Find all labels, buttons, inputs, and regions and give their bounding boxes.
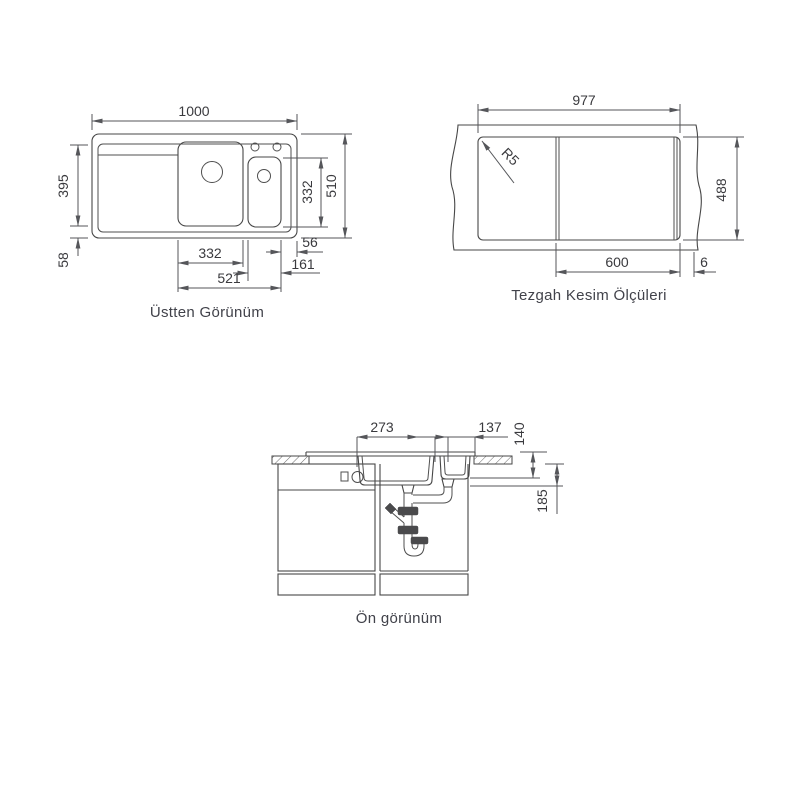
- cutout-divider-right: [674, 137, 677, 240]
- dim-overall-depth: 510: [323, 174, 339, 198]
- main-bowl: [178, 142, 243, 226]
- countertop-section-left: [272, 456, 309, 464]
- main-drain-hole: [202, 162, 223, 183]
- cutout-view: R5 977 488 600 6 Tezgah Kesim Ölçüleri: [451, 92, 744, 304]
- dim-edge-offset: 6: [700, 254, 708, 270]
- trap-nut-outlet: [411, 537, 428, 544]
- front-view-dimensions: 273 137 140 185: [357, 419, 564, 514]
- dim-small-drain-offset: 137: [478, 419, 502, 435]
- trap-nut-mid: [398, 526, 418, 534]
- small-bowl: [248, 157, 281, 227]
- siphon-assembly: [385, 479, 454, 556]
- dim-right-bowl-depth: 332: [299, 180, 315, 204]
- drawer-knob: [352, 472, 363, 483]
- dim-depth-drain: 185: [534, 489, 550, 513]
- plinth-left: [278, 574, 375, 595]
- dim-corner-radius: R5: [499, 144, 523, 168]
- dim-left-bottom: 58: [55, 252, 71, 268]
- sink-outer-edge: [92, 134, 297, 238]
- cutout-view-caption: Tezgah Kesim Ölçüleri: [511, 286, 667, 304]
- main-drain-fitting: [402, 485, 414, 493]
- sink-outline: [92, 134, 297, 238]
- dim-main-drain-offset: 273: [370, 419, 394, 435]
- dim-depth-top: 140: [511, 422, 527, 446]
- top-view-dimensions: 1000 510 332 395 58 332: [55, 103, 352, 292]
- technical-drawing-page: 1000 510 332 395 58 332: [0, 0, 800, 800]
- front-view: 273 137 140 185 Ön görünüm: [272, 419, 564, 627]
- dim-main-bowl-width: 332: [198, 245, 222, 261]
- dim-left-depth: 395: [55, 174, 71, 198]
- top-view-caption: Üstten Görünüm: [150, 303, 264, 321]
- small-drain-fitting: [442, 479, 454, 487]
- dim-right-edge-gap: 56: [302, 234, 318, 250]
- cutout-divider-left: [556, 137, 559, 240]
- dim-bowls-span: 521: [217, 270, 241, 286]
- cabinet: [278, 464, 468, 595]
- dim-cut-width: 977: [572, 92, 596, 108]
- cutout-dimensions: R5 977 488 600 6: [478, 92, 744, 277]
- sink-technical-drawing: 1000 510 332 395 58 332: [0, 0, 800, 800]
- dim-cabinet-width: 600: [605, 254, 629, 270]
- top-view: 1000 510 332 395 58 332: [55, 103, 352, 321]
- small-drain-hole: [258, 170, 271, 183]
- plinth-right: [380, 574, 468, 595]
- dim-cut-depth: 488: [713, 178, 729, 202]
- connecting-pipe: [413, 487, 444, 495]
- cabinet-sink-unit: [380, 464, 468, 571]
- front-view-caption: Ön görünüm: [356, 609, 442, 627]
- countertop-piece: [451, 125, 702, 250]
- countertop-section-right: [474, 456, 512, 464]
- drawer-handle: [341, 472, 348, 481]
- dim-overall-width: 1000: [178, 103, 209, 119]
- dim-small-bowl-width: 161: [291, 256, 315, 272]
- sink-rim-profile: [306, 452, 475, 456]
- branch-cap: [385, 503, 396, 514]
